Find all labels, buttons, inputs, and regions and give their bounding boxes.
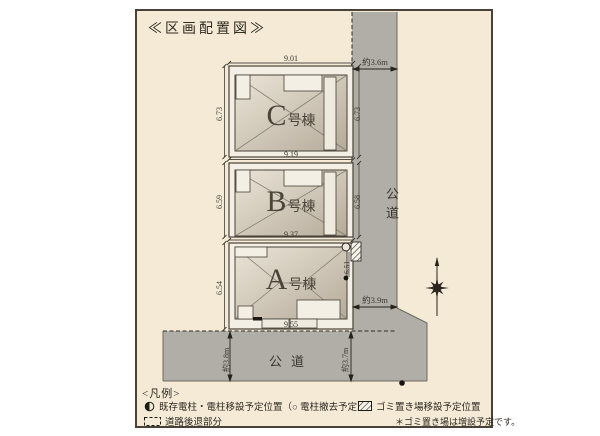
road-right-label: 公道 (382, 187, 401, 225)
building-a-suffix: 号棟 (288, 278, 316, 293)
dim-b-left: 6.59 (215, 195, 224, 209)
building-c-letter: C (266, 99, 287, 132)
dim-a-left: 6.54 (215, 281, 224, 295)
building-c-suffix: 号棟 (288, 114, 316, 129)
site-plan-image: ≪区画配置図≫ 9.01 9.19 9.37 9.55 6.73 6.59 6.… (0, 0, 600, 436)
pole-icon (144, 401, 155, 412)
legend-trash-label: ゴミ置き場移設予定位置 (376, 399, 481, 413)
trash-area-hatch (351, 242, 361, 261)
plan-panel: ≪区画配置図≫ 9.01 9.19 9.37 9.55 6.73 6.59 6.… (135, 9, 493, 428)
dim-c-top: 9.01 (229, 54, 353, 63)
dim-c-right: 6.73 (353, 107, 362, 121)
dim-road-right-top: 約3.6m (353, 56, 397, 68)
dim-a-bottom: 9.55 (229, 320, 353, 329)
legend-pole-label: 既存電柱・電柱移設予定位置（○ 電柱撤去予定） (159, 399, 367, 413)
dim-b-right: 6.58 (353, 195, 362, 209)
building-a-letter: A (266, 263, 289, 296)
legend-note: ＊ゴミ置き場は増設予定です。 (395, 415, 520, 428)
dim-a-top: 9.37 (229, 230, 353, 239)
building-b-letter: B (266, 185, 287, 218)
legend-item-pole: 既存電柱・電柱移設予定位置（○ 電柱撤去予定） (144, 399, 367, 413)
existing-pole-dot-icon (399, 380, 405, 386)
legend-item-trash: ゴミ置き場移設予定位置 (358, 399, 481, 413)
setback-icon (144, 417, 161, 426)
dim-b-top: 9.19 (229, 150, 353, 159)
building-c-label: C号棟 (229, 99, 353, 133)
dim-road-right-mid: 約3.9m (353, 294, 397, 306)
building-b-suffix: 号棟 (288, 200, 316, 215)
dim-c-left: 6.73 (215, 107, 224, 121)
road-corner-flare (397, 308, 427, 381)
legend-item-setback: 道路後退部分 (144, 414, 222, 428)
hatch-icon (358, 401, 372, 411)
compass-icon (425, 257, 449, 316)
road-bottom-label: 公道 (229, 351, 353, 370)
building-a-label: A号棟 (229, 263, 353, 297)
legend-setback-label: 道路後退部分 (165, 414, 222, 428)
building-b-label: B号棟 (229, 185, 353, 219)
pole-removal-circle-icon (342, 243, 350, 251)
plan-title: ≪区画配置図≫ (148, 18, 267, 38)
